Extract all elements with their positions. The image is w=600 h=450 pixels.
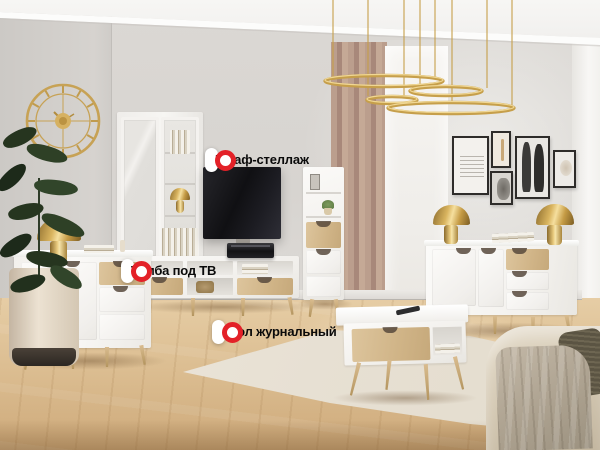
cabinet-shelf-line-3 [165,215,195,217]
plant-leaf [39,210,87,241]
right-sideboard-door-1 [432,249,476,306]
plant-leaf [34,178,79,196]
drawer-handle-notch [512,291,527,297]
shelf-unit-lower-drawer-2 [306,276,341,297]
figure-right [534,144,544,192]
picture-frame-botanical [490,171,513,205]
hotspot-marker-icon[interactable] [215,150,236,171]
drawer-handle-notch [383,327,398,333]
drawer-handle-notch [257,277,272,283]
left-sideboard-vase [120,240,125,252]
hotspot-marker-icon[interactable] [222,322,243,343]
shelf-unit-wood-drawer [306,222,341,248]
right-sideboard-lamp-right-stem [547,225,562,245]
record-player [227,243,274,258]
drawer-handle-notch [316,249,331,255]
frame-text-lines [460,156,484,178]
shelf-unit-shelf-1 [306,192,341,194]
coffee-table-books [435,344,460,354]
left-sideboard-drawer-2 [99,287,145,312]
record-player-lid-line [231,245,270,247]
left-sideboard-drawer-3 [99,314,145,340]
tv-stand-shadow [130,300,315,314]
product-scene: Шкаф-стеллаж Тумба под ТВ Стол журнальны… [0,0,600,450]
tv-screen [203,167,281,239]
drawer-handle-notch [316,221,331,227]
picture-frame-sketch [553,150,576,188]
coffee-table-wood-drawer [352,327,431,362]
sofa-blanket-folds [495,344,593,450]
drawer-handle-notch [512,248,527,254]
tv-stand-cubby-books [242,264,268,274]
cabinet-shelf-line-2 [165,183,195,185]
shelf-unit-decor-frame [310,174,320,190]
hotspot-shelf-cabinet[interactable]: Шкаф-стеллаж [205,148,218,172]
right-sideboard-drawer-2 [506,272,549,290]
cabinet-lamp-stem [176,200,184,213]
figure-left [522,142,531,192]
drawer-handle-notch [113,286,128,292]
dried-flower-stem [501,139,504,161]
picture-frame-text-print [452,136,489,195]
hotspot-marker-icon[interactable] [131,261,152,282]
plant-leaf [0,159,30,195]
hotspot-coffee-table[interactable]: Стол журнальный [212,320,225,344]
right-sideboard-door-2 [478,249,504,307]
picture-frame-figures-photo [515,136,550,199]
cabinet-books-bottom [162,228,198,256]
cabinet-books-top [170,130,190,154]
plant-foliage [0,118,100,278]
drawer-handle-notch [512,271,527,277]
door-handle-notch [481,248,496,254]
shelf-unit-lower-drawer-1 [306,250,341,274]
botanical-photo [497,178,510,200]
hotspot-tv-stand[interactable]: Тумба под ТВ [121,259,134,283]
picture-frame-dried-flower [491,131,511,168]
cabinet-glass-door-left [121,117,159,259]
shelf-unit-shelf-2 [306,216,341,218]
right-sideboard-wood-drawer [506,249,549,270]
tv-stand-drawer-right [237,278,293,295]
plant-leaf [25,141,69,166]
door-handle-notch [456,248,471,254]
shelf-unit-plant-pot [324,208,332,215]
plant-pot-base [12,348,76,366]
gold-ring-chandelier [295,0,530,122]
sketch-motif [560,160,572,176]
right-sideboard-drawer-3 [506,292,549,310]
right-sideboard-lamp-left-stem [444,225,458,244]
